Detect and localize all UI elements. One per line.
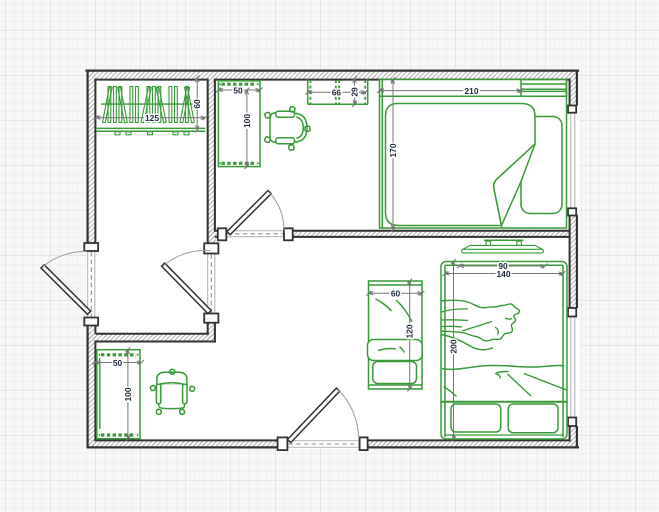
svg-text:100: 100: [123, 387, 133, 401]
svg-text:140: 140: [497, 269, 511, 279]
svg-text:210: 210: [465, 86, 479, 96]
svg-text:100: 100: [242, 114, 252, 128]
svg-text:29: 29: [350, 87, 360, 97]
svg-text:66: 66: [332, 87, 342, 97]
svg-text:120: 120: [405, 324, 415, 338]
svg-text:60: 60: [192, 99, 202, 109]
svg-text:125: 125: [145, 113, 159, 123]
svg-text:170: 170: [388, 143, 398, 157]
svg-text:60: 60: [391, 289, 401, 299]
svg-text:200: 200: [449, 339, 459, 353]
svg-text:50: 50: [113, 358, 123, 368]
svg-text:50: 50: [233, 85, 243, 95]
